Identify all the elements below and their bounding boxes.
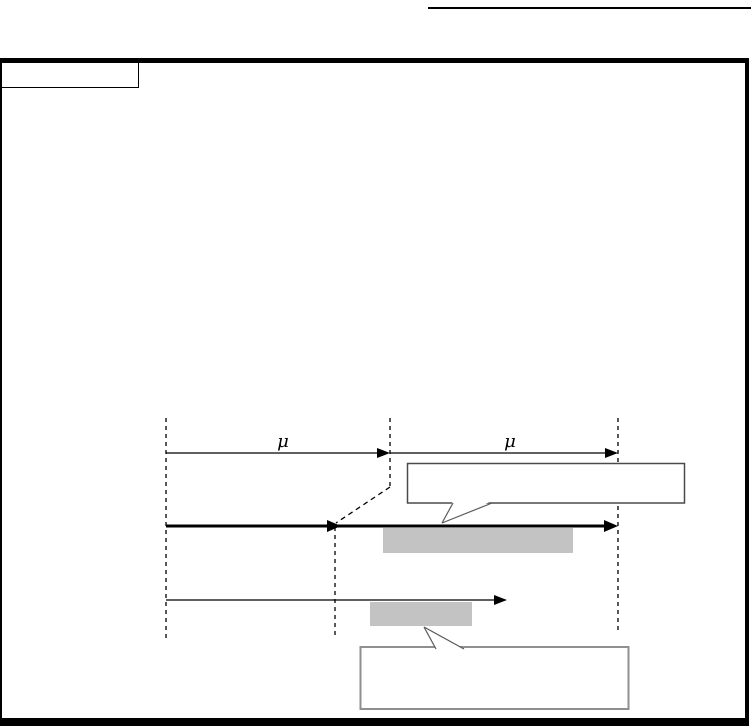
timing-diagram: μ μ — [0, 0, 751, 726]
callout-upper — [408, 464, 685, 504]
arrowhead-icon — [377, 448, 390, 458]
arrowhead-icon — [494, 595, 507, 605]
mu-label-left: μ — [277, 431, 289, 452]
dashed-line-mid-diagonal — [336, 487, 390, 523]
callout-lower — [361, 647, 629, 709]
arrowhead-icon — [605, 448, 618, 458]
page: μ μ — [0, 0, 751, 726]
gray-bar-lower — [370, 602, 472, 626]
arrowhead-icon — [327, 520, 341, 532]
arrowhead-icon — [604, 520, 618, 532]
mu-label-right: μ — [504, 431, 516, 452]
gray-bar-upper — [383, 528, 573, 553]
